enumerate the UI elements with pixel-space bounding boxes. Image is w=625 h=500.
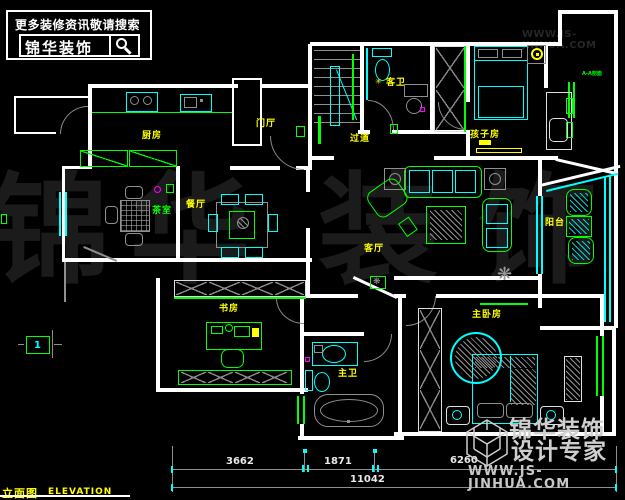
search-icon-handle [124,47,132,55]
window [609,176,611,322]
wardrobe-cell [436,90,464,130]
basin [322,345,346,363]
table-weave [569,219,589,234]
desk-shelf [566,98,573,114]
blanket-hatch [475,357,535,368]
divider [109,36,111,55]
stair-tread [314,50,360,51]
bookshelf-cell [242,282,273,295]
chair [268,214,278,232]
wardrobe-edge [464,46,466,132]
wall [156,388,308,392]
vanity-item [314,345,323,353]
wall [394,276,542,280]
bed-line [474,60,528,61]
bathtub-inner [320,399,378,422]
dim-tick [372,465,374,472]
dim-tick [303,449,307,453]
chair-weave [570,193,588,212]
wall [540,326,616,330]
wall [306,166,310,192]
curtain-line [480,303,528,305]
desk-item [211,326,223,334]
plant-icon: ❋ [373,276,381,289]
title-cn: 立面图 [2,485,38,500]
room-label-master-bath: 主卫 [338,370,358,379]
cabinet-cell [181,372,206,383]
cube-logo-icon [464,418,510,468]
wall [306,294,358,298]
window [536,196,538,274]
chair [125,233,143,246]
toilet-tank [372,48,392,57]
bench [476,148,522,153]
desk-chair [549,118,568,142]
brand-watermark-line2: 设计专家 [511,441,607,464]
brand-watermark-site: WWW.JS-JINHUA.COM [468,465,625,491]
room-label-living: 客厅 [364,245,384,254]
brand-name: 锦华装饰 [25,37,93,58]
window [59,192,61,236]
wall [176,166,180,262]
cabinet [80,150,128,167]
chair [221,247,239,258]
counter-edge [92,112,232,113]
lamp-dot [536,53,539,56]
wall [558,10,562,44]
window [596,336,598,396]
room-label-hallway: 过道 [350,135,370,144]
cabinet-cell [208,372,233,383]
desk-chair [221,349,244,368]
wall [14,132,56,134]
wall [14,96,90,98]
chair [105,206,118,224]
blanket-hatch [511,369,536,405]
wardrobe-cell [420,350,440,389]
marker-tick [52,330,53,358]
cabinet [129,150,177,167]
wall [156,278,160,390]
wall [614,166,618,328]
bed-line [510,356,511,402]
wall-accent [366,48,368,100]
wall [394,294,406,298]
tub-faucet [347,420,350,423]
door-tag [296,126,305,137]
header-logo-block: 更多装修资讯敬请搜索 锦华装饰 [6,10,152,60]
chair [245,247,263,258]
wall [88,84,238,88]
bookshelf-cell [176,282,207,295]
window [602,336,604,396]
room-label-guest-bath: 客卫 [386,79,406,88]
wall [398,294,402,440]
shelf-edge [174,297,306,299]
title-underline [0,495,130,497]
wall [230,166,280,170]
bookshelf-cell [275,282,304,295]
floor-plan-canvas: 锦 华 装 饰 WWW.JS-JINHUA.COM 更多装修资讯敬请搜索 锦华装… [0,0,625,500]
side-table-lamp [489,173,501,185]
faucet [200,99,203,102]
bench-cushion [479,140,491,145]
watermark-char: 锦 [0,172,110,292]
switch-marker [1,214,7,224]
tea-table [120,200,150,232]
wall [306,228,310,262]
pillow [478,49,498,58]
wall [300,332,364,336]
room-label-balcony: 阳台 [545,219,565,228]
wall [466,44,470,102]
centerpiece [237,217,249,229]
room-label-tea-room: 茶室 [152,207,172,216]
chair [245,194,263,205]
dim-tick [171,484,173,491]
wall [466,156,558,160]
dim-label: 3662 [226,457,254,467]
wall [14,96,16,134]
section-label: A-A剖面 [582,72,602,77]
marker-tick [54,344,62,345]
detail-marker-number: 1 [34,340,41,351]
wall [62,258,180,262]
sofa-cushion [432,170,453,193]
wardrobe-cell [420,390,440,429]
window [303,396,305,424]
toilet-tank [305,370,313,391]
monitor [234,326,250,337]
dim-label-total: 11042 [350,475,385,485]
window [297,396,299,424]
toilet-bowl [314,372,330,392]
bookshelf-cell [209,282,240,295]
pillow [502,49,522,58]
dim-label: 1871 [324,457,352,467]
stove-burner [143,96,152,105]
dim-tick [171,466,173,473]
drain-marker [305,357,310,362]
door-tag [390,124,398,134]
tv-cabinet-fill [566,358,580,400]
stair-handrail [352,54,354,120]
wardrobe-cell [420,310,440,349]
wall [538,160,542,196]
drain-marker [420,107,425,112]
door-arc [60,106,88,134]
window [541,196,543,274]
chaise-cushion [486,228,508,248]
wall [308,44,312,168]
cabinet-cell [235,372,260,383]
elevator-shaft [232,78,262,146]
desk-lamp [225,324,233,332]
wall [176,258,312,262]
chair [221,194,239,205]
chaise-cushion [486,204,508,224]
wall [436,294,602,298]
room-label-study: 书房 [219,305,239,314]
switch-marker [154,186,161,193]
room-label-kitchen: 厨房 [142,132,162,141]
blanket [478,86,524,118]
wall [306,262,310,296]
window [604,176,606,322]
wall [558,10,618,14]
window [573,82,575,118]
dim-tick [302,465,304,472]
brand-search-box: 锦华装饰 [19,34,140,57]
window [65,192,67,236]
stair-handrail [318,116,321,144]
dim-tick [307,465,309,472]
lamp-icon [452,410,462,420]
room-label-foyer: 门厅 [256,120,276,129]
light-symbol: ✳ [375,78,383,86]
wall [64,262,66,302]
door-arc [276,298,304,324]
dim-tick [377,465,379,472]
stove-burner [130,96,139,105]
wall [360,44,364,134]
sofa-cushion [455,170,476,193]
sofa-cushion [409,170,430,193]
wall [312,156,334,160]
door-arc [364,334,392,362]
wall [434,156,468,160]
vanity [404,84,428,97]
wall [298,436,404,440]
cabinet-cell [262,372,287,383]
marker-tick [18,344,24,345]
sink-basin [184,97,197,108]
desk-item [252,328,259,337]
chair [208,214,218,232]
wall [260,84,312,88]
brand-watermark: 锦华装饰 设计专家 WWW.JS-JINHUA.COM [462,416,625,482]
room-label-master-bedroom: 主卧房 [472,311,502,320]
wardrobe-cell [436,48,464,88]
door-arc [270,136,304,170]
wall [614,10,618,168]
chair [125,186,143,199]
room-label-dining: 餐厅 [186,201,206,210]
header-tagline: 更多装修资讯敬请搜索 [15,16,140,33]
room-label-kids-room: 孩子房 [470,131,500,140]
chair-weave [572,241,590,260]
switch-marker [166,184,174,193]
coffee-table-glass [430,210,462,240]
plant-icon: ❋ [497,266,512,284]
dim-tick [373,449,377,453]
